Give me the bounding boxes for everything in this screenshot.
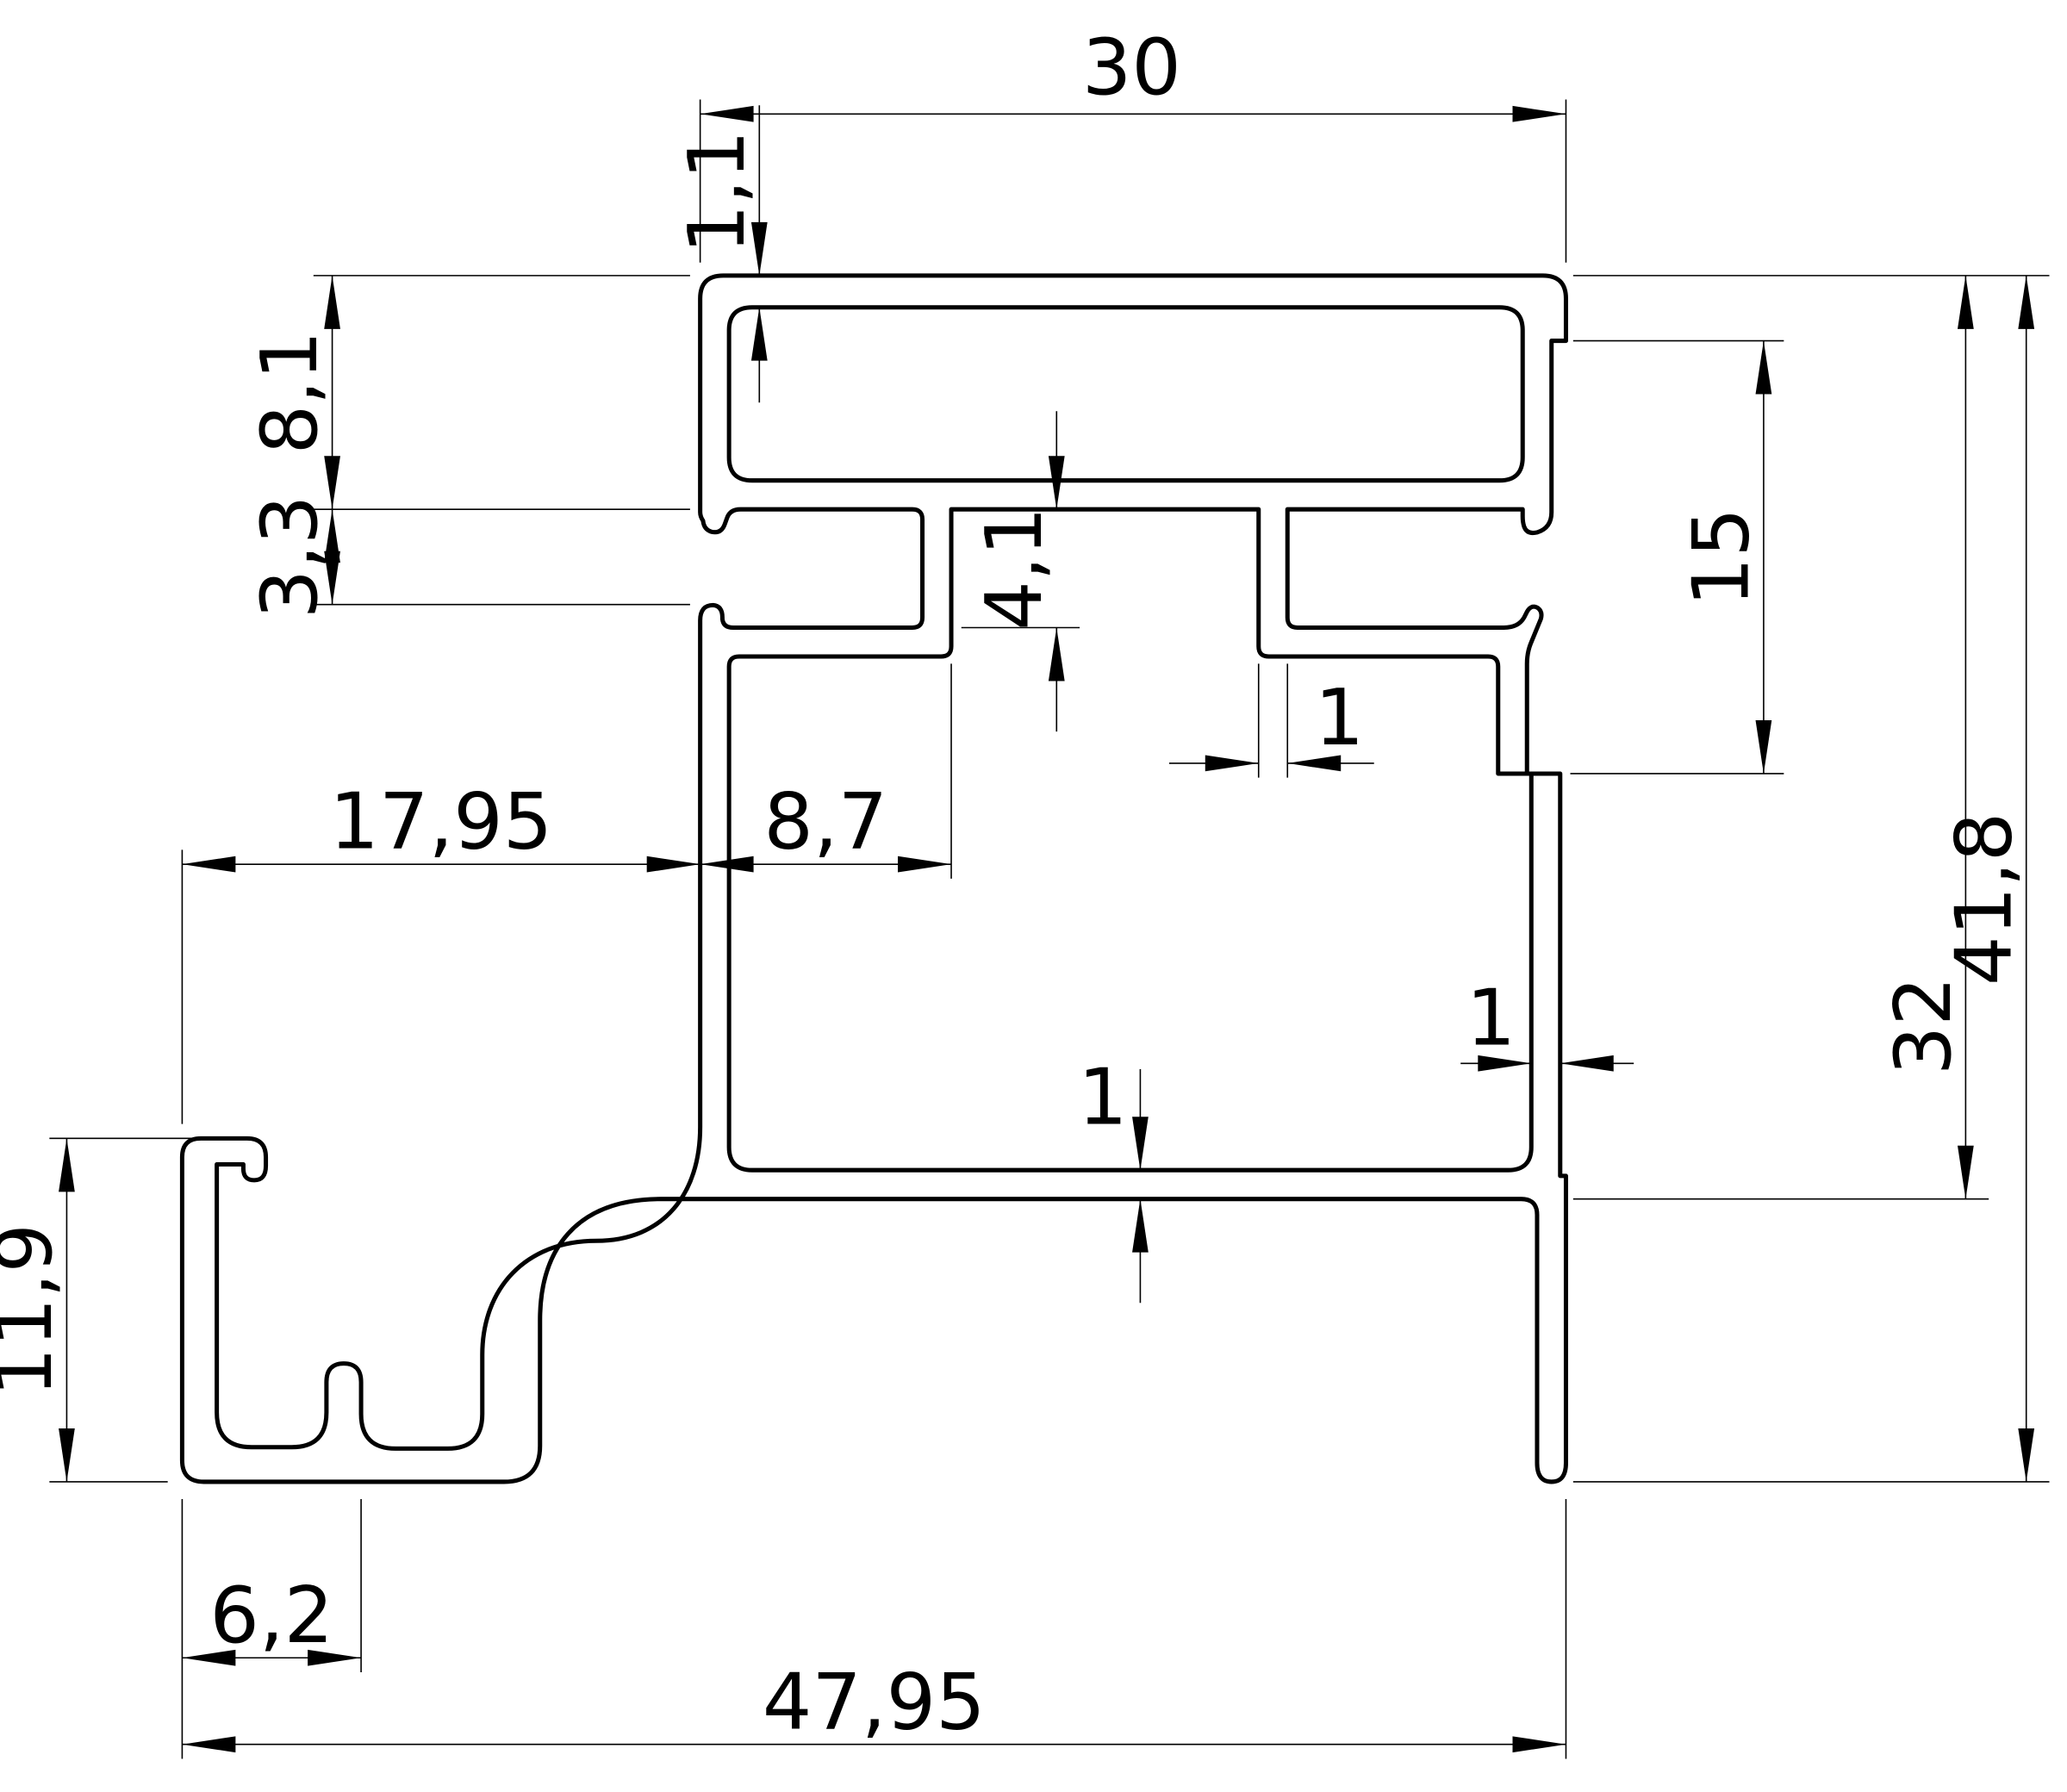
dimension-arrowhead bbox=[2018, 1428, 2034, 1482]
dimension-top-width: 30 bbox=[700, 22, 1566, 263]
dimension-right-step-height: 15 bbox=[1570, 341, 1784, 774]
drawing-canvas: 30 1,1 8,1 3,3 4,1 15 32 41,8 17,95 8,7 bbox=[0, 0, 2067, 1792]
dimension-hook-height: 11,9 bbox=[0, 1138, 231, 1482]
dimension-slot-depth: 8,7 bbox=[700, 663, 951, 879]
dimension-body-height: 32 bbox=[1573, 276, 2050, 1199]
dimension-arrowhead bbox=[1756, 341, 1772, 395]
dimension-arrowhead bbox=[1756, 720, 1772, 774]
dimension-label: 41,8 bbox=[1939, 812, 2029, 986]
dimension-label: 17,95 bbox=[329, 777, 552, 868]
dimension-arrowhead bbox=[1049, 628, 1065, 681]
dimension-arrowhead bbox=[59, 1428, 75, 1482]
dimension-left-offset: 17,95 bbox=[182, 777, 700, 1124]
dimension-label: 1 bbox=[1315, 673, 1365, 763]
drawing-page: 30 1,1 8,1 3,3 4,1 15 32 41,8 17,95 8,7 bbox=[0, 0, 2067, 1792]
dimension-arrowhead bbox=[751, 308, 768, 361]
dimension-label: 32 bbox=[1878, 976, 1969, 1075]
dimension-arrowhead bbox=[1513, 106, 1566, 122]
dimension-arrowhead bbox=[1958, 276, 1974, 329]
dimension-arrowhead bbox=[182, 856, 235, 873]
dimension-arrowhead bbox=[324, 276, 340, 329]
dimension-right-wall-thickness: 1 bbox=[1460, 973, 1634, 1071]
dimension-label: 8,7 bbox=[763, 777, 887, 868]
dimension-bottom-wall-thickness: 1 bbox=[1078, 1053, 1149, 1304]
dimension-arrowhead bbox=[700, 106, 754, 122]
dimension-arrowhead bbox=[308, 1650, 361, 1666]
dimension-hook-width: 6,2 bbox=[182, 1499, 361, 1672]
dimension-label: 1,1 bbox=[672, 130, 763, 254]
dimension-arrowhead bbox=[1958, 1146, 1974, 1199]
dimension-top-wall-thickness: 1,1 bbox=[672, 105, 768, 402]
dimension-left-upper-height: 8,1 bbox=[245, 276, 690, 509]
dimension-arrowhead bbox=[898, 856, 951, 873]
profile-top-box-cavity bbox=[729, 308, 1522, 481]
profile-outer-contour bbox=[182, 276, 1566, 1482]
dimension-slot-inner-height: 4,1 bbox=[962, 411, 1080, 731]
dimension-label: 3,3 bbox=[245, 495, 335, 619]
dimension-arrowhead bbox=[1560, 1055, 1614, 1072]
dimension-label: 47,95 bbox=[763, 1657, 986, 1747]
dimension-label: 4,1 bbox=[969, 507, 1060, 631]
dimension-arrowhead bbox=[1205, 756, 1259, 772]
dimension-label: 30 bbox=[1082, 22, 1181, 113]
profile-outline bbox=[182, 276, 1566, 1482]
dimension-label: 8,1 bbox=[245, 331, 335, 455]
dimension-arrowhead bbox=[647, 856, 700, 873]
dimension-label: 1 bbox=[1078, 1053, 1128, 1143]
dimension-arrowhead bbox=[2018, 276, 2034, 329]
dimension-total-height: 41,8 bbox=[1573, 276, 2050, 1482]
dimension-label: 15 bbox=[1676, 507, 1766, 607]
dimension-total-width: 47,95 bbox=[182, 1499, 1566, 1758]
dimension-label: 11,9 bbox=[0, 1223, 70, 1397]
dimension-slot-wall-thickness: 1 bbox=[1169, 663, 1374, 777]
dimension-label: 6,2 bbox=[209, 1571, 333, 1661]
dimension-arrowhead bbox=[1513, 1736, 1566, 1752]
dimension-left-slot-mouth: 3,3 bbox=[245, 495, 690, 619]
dimension-label: 1 bbox=[1466, 973, 1516, 1063]
dimension-arrowhead bbox=[1132, 1117, 1149, 1170]
dimension-arrowhead bbox=[59, 1138, 75, 1192]
dimension-arrowhead bbox=[182, 1736, 235, 1752]
dimension-arrowhead bbox=[1132, 1199, 1149, 1253]
